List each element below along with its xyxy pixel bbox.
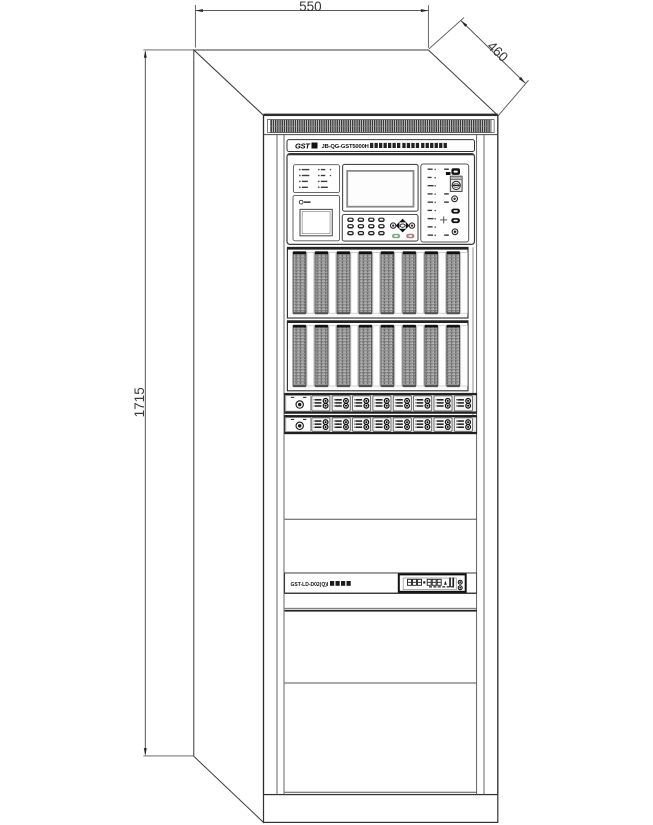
svg-text:550: 550	[299, 0, 322, 14]
svg-text:GST: GST	[295, 141, 311, 150]
svg-text:1715: 1715	[132, 387, 147, 417]
svg-text:GST-LD-D02(Q)I: GST-LD-D02(Q)I	[291, 582, 329, 588]
svg-text:JB-QG-GST5000H: JB-QG-GST5000H	[322, 144, 369, 150]
